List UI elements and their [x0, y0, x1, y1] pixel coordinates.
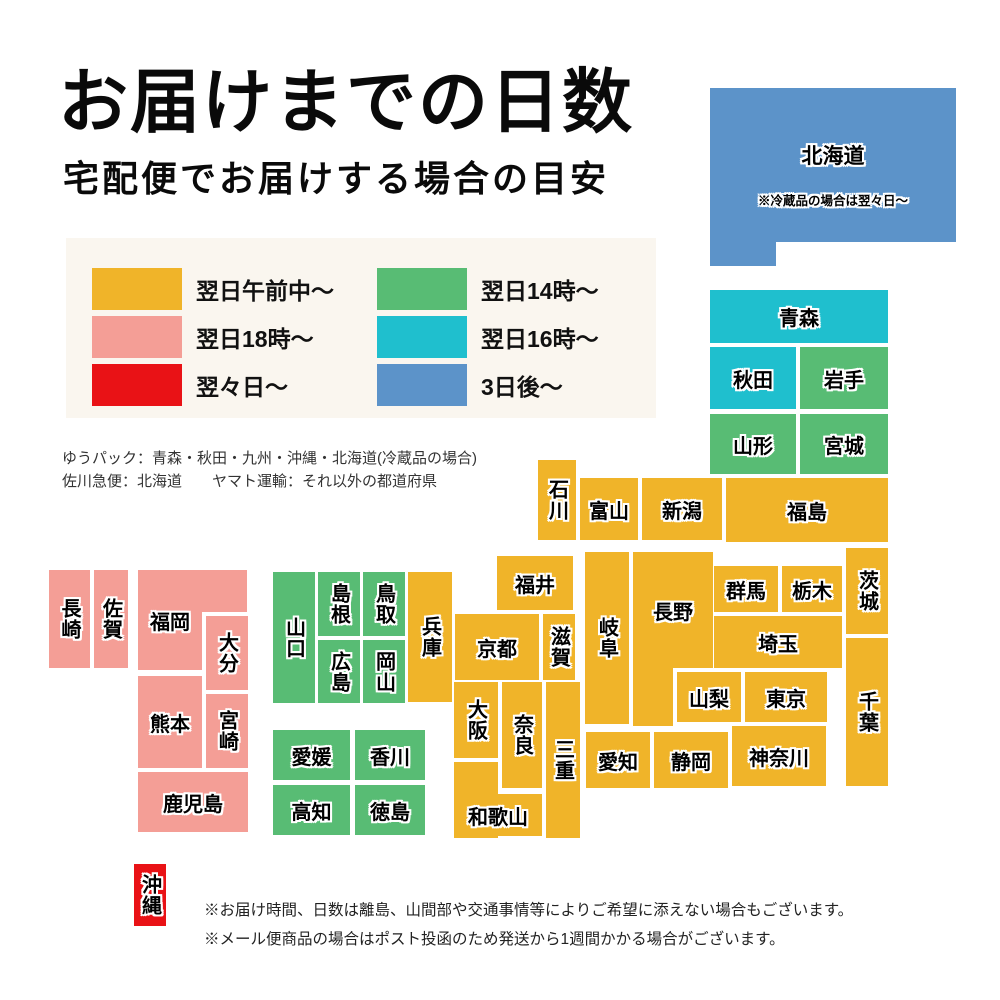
- prefecture-label: 宮城: [800, 414, 888, 474]
- prefecture-label: 山口: [273, 572, 315, 703]
- prefecture-label: 山梨: [677, 672, 741, 722]
- prefecture-label: 徳島: [355, 785, 425, 835]
- prefecture-label: 静岡: [654, 732, 728, 788]
- prefecture-label: 茨城: [846, 548, 888, 634]
- prefecture-label: 青森: [710, 290, 888, 343]
- prefecture-area: [710, 242, 776, 266]
- prefecture-label: 大阪: [454, 682, 498, 758]
- prefecture-label: 沖縄: [134, 864, 166, 926]
- footnote-line-2: ※メール便商品の場合はポスト投函のため発送から1週間かかる場合がございます。: [204, 925, 853, 954]
- prefecture-label: 三重: [546, 682, 580, 838]
- delivery-days-infographic: お届けまでの日数 宅配便でお届けする場合の目安 翌日午前中〜翌日18時〜翌々日〜…: [0, 0, 1000, 1000]
- prefecture-label: 京都: [455, 614, 539, 680]
- prefecture-label: 佐賀: [94, 570, 128, 668]
- prefecture-label: 秋田: [710, 347, 796, 409]
- prefecture-label: 長野: [633, 552, 713, 668]
- prefecture-label: 鳥取: [363, 572, 405, 636]
- prefecture-name: 北海道: [802, 140, 865, 170]
- prefecture-label: 島根: [318, 572, 360, 636]
- hokkaido-cold-item-note: ※冷蔵品の場合は翌々日〜: [758, 190, 908, 209]
- prefecture-label: 富山: [580, 478, 638, 540]
- prefecture-label: 滋賀: [543, 614, 575, 680]
- prefecture-label: 新潟: [642, 478, 722, 540]
- prefecture-label: 岡山: [363, 640, 405, 703]
- prefecture-label: 埼玉: [714, 616, 842, 668]
- prefecture-label: 北海道※冷蔵品の場合は翌々日〜: [710, 88, 956, 242]
- prefecture-label: 千葉: [846, 638, 888, 786]
- prefecture-label: 大分: [206, 616, 248, 690]
- prefecture-label: 宮崎: [206, 694, 248, 768]
- footnotes: ※お届け時間、日数は離島、山間部や交通事情等によりご希望に添えない場合もございま…: [204, 896, 853, 954]
- japan-map: 北海道※冷蔵品の場合は翌々日〜青森秋田岩手山形宮城石川富山新潟福島福井群馬栃木茨…: [0, 0, 1000, 1000]
- prefecture-label: 高知: [273, 785, 350, 835]
- prefecture-area: [633, 668, 673, 726]
- prefecture-label: 神奈川: [732, 726, 826, 786]
- prefecture-label: 愛媛: [273, 730, 350, 780]
- prefecture-label: 兵庫: [408, 572, 452, 702]
- prefecture-label: 福岡: [138, 570, 202, 670]
- prefecture-label: 奈良: [502, 682, 542, 788]
- prefecture-label: 群馬: [714, 566, 778, 612]
- prefecture-label: 東京: [745, 672, 827, 722]
- prefecture-label: 福島: [726, 478, 888, 542]
- prefecture-label: 和歌山: [454, 794, 542, 836]
- prefecture-label: 熊本: [138, 676, 202, 768]
- prefecture-label: 愛知: [586, 732, 650, 788]
- prefecture-label: 福井: [497, 556, 573, 610]
- footnote-line-1: ※お届け時間、日数は離島、山間部や交通事情等によりご希望に添えない場合もございま…: [204, 896, 853, 925]
- prefecture-label: 石川: [538, 460, 576, 540]
- prefecture-label: 広島: [318, 640, 360, 703]
- prefecture-label: 山形: [710, 414, 796, 474]
- prefecture-label: 香川: [355, 730, 425, 780]
- prefecture-label: 長崎: [49, 570, 90, 668]
- prefecture-label: 岐阜: [585, 552, 629, 724]
- prefecture-label: 岩手: [800, 347, 888, 409]
- prefecture-label: 栃木: [782, 566, 842, 612]
- prefecture-label: 鹿児島: [138, 772, 248, 832]
